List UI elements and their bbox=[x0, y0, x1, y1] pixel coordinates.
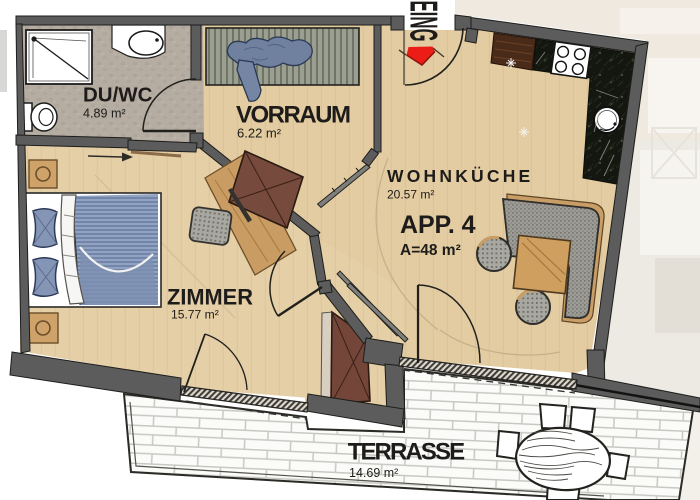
svg-text:15.77 m²: 15.77 m² bbox=[171, 308, 219, 322]
svg-text:20.57 m²: 20.57 m² bbox=[387, 188, 434, 202]
svg-text:WOHNKÜCHE: WOHNKÜCHE bbox=[387, 166, 533, 186]
svg-text:VORRAUM: VORRAUM bbox=[236, 102, 350, 129]
svg-text:APP. 4: APP. 4 bbox=[400, 211, 476, 239]
svg-text:4.89 m²: 4.89 m² bbox=[83, 107, 126, 121]
svg-text:6.22 m²: 6.22 m² bbox=[237, 126, 282, 141]
svg-text:14.69 m²: 14.69 m² bbox=[349, 466, 398, 480]
svg-text:EING: EING bbox=[402, 1, 445, 42]
svg-text:DU/WC: DU/WC bbox=[83, 84, 153, 107]
svg-text:TERRASSE: TERRASSE bbox=[348, 439, 465, 466]
svg-text:ZIMMER: ZIMMER bbox=[167, 285, 253, 310]
svg-text:A=48 m²: A=48 m² bbox=[400, 242, 461, 259]
